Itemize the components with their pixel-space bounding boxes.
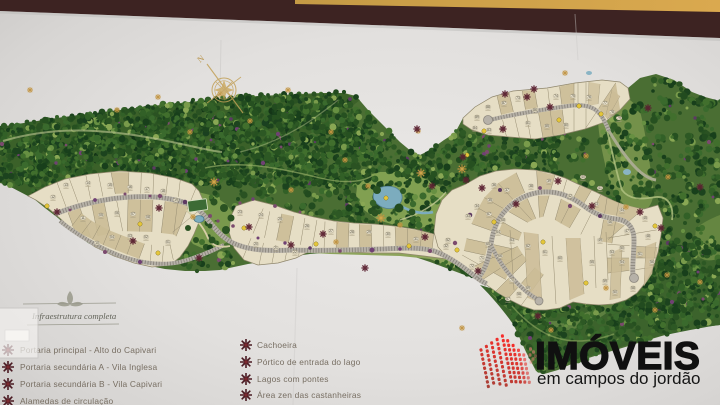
svg-text:26: 26 <box>305 224 309 228</box>
svg-text:54: 54 <box>620 260 624 264</box>
svg-text:81: 81 <box>526 121 530 125</box>
svg-text:33: 33 <box>466 214 470 218</box>
svg-text:50: 50 <box>613 290 617 294</box>
svg-text:86: 86 <box>533 108 537 112</box>
svg-text:08: 08 <box>146 215 150 219</box>
svg-text:37: 37 <box>505 188 509 192</box>
svg-text:27: 27 <box>329 229 333 233</box>
svg-text:38: 38 <box>529 184 533 188</box>
svg-text:11: 11 <box>81 216 85 220</box>
svg-text:73: 73 <box>516 96 520 100</box>
svg-text:34: 34 <box>475 204 479 208</box>
svg-text:22: 22 <box>293 250 297 254</box>
svg-text:52: 52 <box>446 238 450 242</box>
svg-text:84: 84 <box>473 126 477 130</box>
svg-text:40: 40 <box>581 175 585 179</box>
svg-text:88: 88 <box>486 105 490 109</box>
svg-text:23: 23 <box>238 210 242 214</box>
svg-text:35: 35 <box>488 198 492 202</box>
svg-text:12: 12 <box>51 195 55 199</box>
svg-text:06: 06 <box>115 211 119 215</box>
svg-text:58: 58 <box>517 292 521 296</box>
svg-text:04: 04 <box>110 235 114 239</box>
svg-text:56: 56 <box>650 260 654 264</box>
svg-text:16: 16 <box>128 185 132 189</box>
svg-text:21: 21 <box>274 246 278 250</box>
svg-text:53: 53 <box>610 250 614 254</box>
svg-text:79: 79 <box>617 116 621 120</box>
svg-text:47: 47 <box>625 229 629 233</box>
svg-text:50: 50 <box>620 246 624 250</box>
svg-text:36: 36 <box>492 183 496 187</box>
svg-text:57: 57 <box>506 297 510 301</box>
svg-text:10: 10 <box>95 241 99 245</box>
svg-text:55: 55 <box>590 260 594 264</box>
svg-text:02: 02 <box>144 235 148 239</box>
svg-text:62: 62 <box>526 244 530 248</box>
svg-text:28: 28 <box>350 230 354 234</box>
svg-text:58: 58 <box>631 286 635 290</box>
svg-text:03: 03 <box>128 234 132 238</box>
svg-text:78: 78 <box>610 110 614 114</box>
svg-text:46: 46 <box>608 220 612 224</box>
svg-text:25: 25 <box>278 217 282 221</box>
svg-text:30: 30 <box>386 232 390 236</box>
svg-text:48: 48 <box>646 234 650 238</box>
svg-text:80: 80 <box>564 123 568 127</box>
svg-text:77: 77 <box>603 101 607 105</box>
svg-text:85: 85 <box>545 124 549 128</box>
svg-text:17: 17 <box>145 187 149 191</box>
svg-text:18: 18 <box>161 189 165 193</box>
svg-text:20: 20 <box>254 242 258 246</box>
svg-text:14: 14 <box>86 181 90 185</box>
svg-text:74: 74 <box>554 94 558 98</box>
svg-text:76: 76 <box>587 95 591 99</box>
svg-text:60: 60 <box>558 256 562 260</box>
svg-text:19: 19 <box>174 198 178 202</box>
svg-text:32: 32 <box>444 244 448 248</box>
svg-text:87: 87 <box>502 101 506 105</box>
svg-text:05: 05 <box>99 213 103 217</box>
svg-text:31: 31 <box>414 237 418 241</box>
svg-text:29: 29 <box>367 230 371 234</box>
svg-text:61: 61 <box>543 250 547 254</box>
svg-text:39: 39 <box>547 179 551 183</box>
svg-text:15: 15 <box>108 183 112 187</box>
svg-text:44: 44 <box>620 208 624 212</box>
svg-text:75: 75 <box>571 94 575 98</box>
svg-text:01: 01 <box>166 240 170 244</box>
svg-text:45: 45 <box>643 216 647 220</box>
svg-text:51: 51 <box>638 252 642 256</box>
svg-text:41: 41 <box>598 186 602 190</box>
svg-text:24: 24 <box>259 213 263 217</box>
svg-text:07: 07 <box>131 212 135 216</box>
svg-text:42: 42 <box>568 194 572 198</box>
svg-text:83: 83 <box>487 128 491 132</box>
svg-text:13: 13 <box>64 183 68 187</box>
svg-text:49: 49 <box>598 238 602 242</box>
svg-text:59: 59 <box>603 279 607 283</box>
svg-text:89: 89 <box>475 115 479 119</box>
